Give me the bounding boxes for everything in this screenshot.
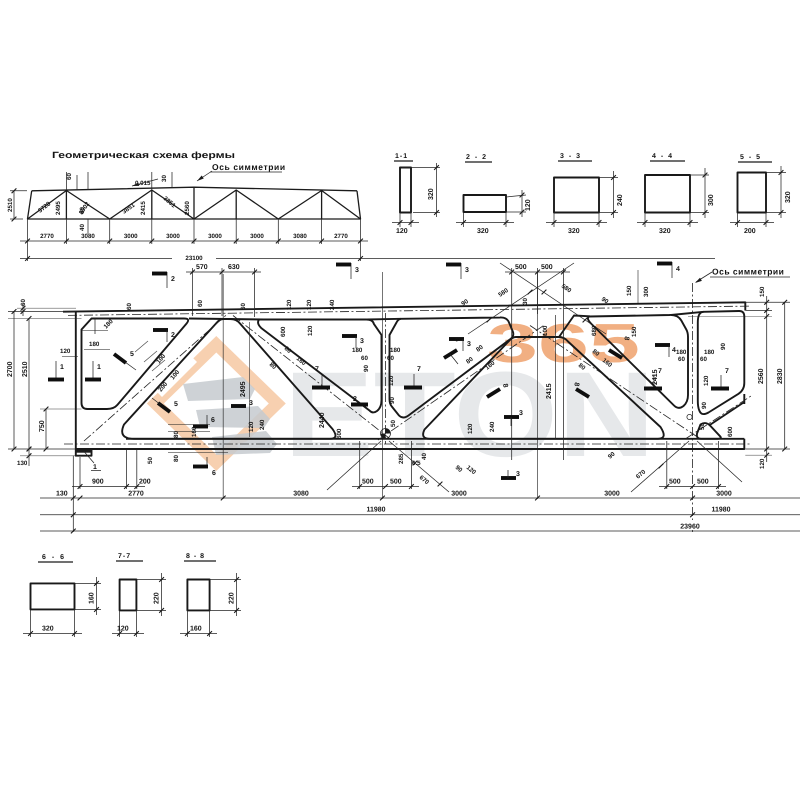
svg-text:90: 90 (720, 343, 727, 350)
svg-text:500: 500 (362, 479, 374, 486)
svg-text:600: 600 (727, 426, 734, 437)
svg-text:23100: 23100 (185, 255, 203, 262)
svg-text:60: 60 (387, 355, 394, 362)
svg-text:2: 2 (353, 396, 357, 403)
svg-text:6.5: 6.5 (412, 460, 421, 467)
svg-text:11980: 11980 (366, 507, 385, 514)
svg-text:180: 180 (390, 347, 401, 354)
svg-text:3080: 3080 (293, 233, 307, 240)
svg-text:500: 500 (541, 264, 553, 271)
svg-text:50: 50 (699, 423, 706, 430)
svg-text:220: 220 (229, 592, 236, 604)
svg-text:3: 3 (467, 341, 471, 348)
svg-text:7-7: 7-7 (118, 553, 131, 560)
svg-text:4: 4 (676, 266, 680, 273)
svg-text:6 - 6: 6 - 6 (42, 554, 66, 561)
svg-text:2: 2 (171, 332, 175, 339)
svg-text:3: 3 (355, 267, 359, 274)
svg-text:1: 1 (60, 364, 64, 371)
svg-text:150: 150 (626, 285, 633, 296)
svg-text:60: 60 (66, 173, 73, 180)
svg-text:3000: 3000 (716, 491, 732, 498)
svg-text:2510: 2510 (22, 361, 29, 377)
svg-text:680: 680 (591, 325, 598, 336)
svg-text:570: 570 (196, 264, 208, 271)
svg-text:30: 30 (522, 298, 529, 305)
svg-text:3080: 3080 (81, 233, 95, 240)
svg-text:2700: 2700 (7, 361, 14, 377)
svg-text:130: 130 (56, 491, 68, 498)
svg-text:2560: 2560 (184, 201, 191, 215)
svg-text:50: 50 (147, 457, 154, 464)
svg-text:6: 6 (211, 417, 215, 424)
svg-text:2495: 2495 (240, 381, 247, 397)
svg-text:7: 7 (725, 368, 729, 375)
svg-text:120: 120 (467, 423, 474, 434)
svg-text:2 - 2: 2 - 2 (466, 154, 488, 161)
svg-text:2770: 2770 (128, 491, 144, 498)
svg-text:60: 60 (197, 300, 204, 307)
svg-text:120: 120 (306, 299, 313, 310)
svg-text:11980: 11980 (711, 507, 730, 514)
svg-text:2510: 2510 (7, 198, 14, 212)
svg-text:240: 240 (617, 194, 624, 206)
svg-text:630: 630 (228, 264, 240, 271)
svg-text:500: 500 (697, 479, 709, 486)
svg-text:120: 120 (388, 375, 395, 386)
svg-text:5: 5 (174, 401, 178, 408)
svg-text:180: 180 (89, 341, 100, 348)
svg-text:900: 900 (92, 479, 104, 486)
svg-text:3000: 3000 (208, 233, 222, 240)
svg-text:3000: 3000 (451, 491, 467, 498)
svg-text:Ось симметрии: Ось симметрии (712, 267, 784, 277)
svg-text:80: 80 (173, 455, 180, 462)
svg-text:160: 160 (89, 592, 96, 604)
svg-text:120: 120 (525, 199, 532, 211)
svg-text:40: 40 (421, 453, 428, 460)
svg-text:600: 600 (336, 428, 343, 439)
svg-text:320: 320 (659, 228, 671, 235)
svg-text:180: 180 (704, 349, 715, 356)
svg-text:240: 240 (259, 419, 266, 430)
svg-text:60: 60 (79, 207, 86, 214)
svg-text:500: 500 (390, 479, 402, 486)
svg-text:50: 50 (390, 420, 397, 427)
svg-text:1: 1 (93, 464, 97, 471)
svg-text:5 - 5: 5 - 5 (740, 154, 762, 161)
svg-text:240: 240 (489, 421, 496, 432)
svg-text:7: 7 (315, 366, 319, 373)
svg-text:320: 320 (785, 191, 792, 203)
svg-text:30: 30 (161, 175, 168, 182)
svg-text:3: 3 (516, 471, 520, 478)
svg-text:4 - 4: 4 - 4 (652, 153, 674, 160)
svg-text:180: 180 (352, 347, 363, 354)
svg-text:3: 3 (360, 338, 364, 345)
svg-text:90: 90 (363, 365, 370, 372)
svg-text:320: 320 (42, 626, 54, 633)
svg-text:100: 100 (542, 325, 549, 336)
svg-text:120: 120 (307, 325, 314, 336)
svg-text:3000: 3000 (124, 233, 138, 240)
svg-text:120: 120 (248, 421, 255, 432)
svg-text:120: 120 (286, 299, 293, 310)
svg-text:5: 5 (130, 351, 134, 358)
svg-text:1: 1 (97, 364, 101, 371)
svg-text:Ось симметрии: Ось симметрии (212, 162, 286, 172)
svg-text:220: 220 (154, 592, 161, 604)
svg-text:60: 60 (678, 356, 685, 363)
svg-text:3000: 3000 (604, 491, 620, 498)
svg-text:300: 300 (643, 286, 650, 297)
svg-text:90: 90 (389, 397, 396, 404)
svg-text:600: 600 (280, 326, 287, 337)
svg-text:Геометрическая схема фермы: Геометрическая схема фермы (52, 150, 235, 160)
svg-text:90: 90 (701, 402, 708, 409)
svg-text:500: 500 (515, 264, 527, 271)
svg-text:23960: 23960 (680, 524, 700, 531)
svg-text:60: 60 (126, 303, 133, 310)
svg-text:3000: 3000 (250, 233, 264, 240)
svg-text:160: 160 (190, 626, 202, 633)
svg-text:500: 500 (669, 479, 681, 486)
svg-text:7: 7 (417, 366, 421, 373)
svg-text:60: 60 (700, 356, 707, 363)
svg-text:40: 40 (79, 224, 86, 231)
svg-text:2770: 2770 (40, 233, 54, 240)
svg-text:320: 320 (568, 228, 580, 235)
svg-text:300: 300 (708, 194, 715, 206)
svg-text:1-1: 1-1 (395, 153, 408, 160)
svg-text:120: 120 (117, 626, 129, 633)
svg-text:120: 120 (60, 348, 71, 355)
svg-text:3 - 3: 3 - 3 (560, 153, 582, 160)
svg-text:320: 320 (477, 228, 489, 235)
svg-text:2: 2 (171, 276, 175, 283)
svg-text:2560: 2560 (758, 368, 765, 384)
svg-text:120: 120 (396, 228, 408, 235)
svg-text:60: 60 (361, 355, 368, 362)
svg-text:150: 150 (631, 326, 638, 337)
svg-text:2440: 2440 (319, 412, 326, 428)
svg-text:3: 3 (465, 267, 469, 274)
svg-text:2415: 2415 (546, 383, 553, 399)
svg-text:200: 200 (139, 479, 151, 486)
svg-text:2415: 2415 (140, 201, 147, 215)
svg-text:2495: 2495 (55, 201, 62, 215)
svg-text:60: 60 (20, 299, 27, 306)
svg-text:180: 180 (676, 349, 687, 356)
svg-text:3000: 3000 (166, 233, 180, 240)
svg-text:2830: 2830 (777, 368, 784, 384)
svg-text:200: 200 (744, 228, 756, 235)
svg-text:130: 130 (17, 460, 28, 467)
svg-text:320: 320 (428, 188, 435, 200)
svg-text:60: 60 (240, 303, 247, 310)
svg-text:8 - 8: 8 - 8 (186, 553, 205, 560)
svg-text:120: 120 (703, 375, 710, 386)
svg-text:3080: 3080 (293, 491, 309, 498)
svg-text:120: 120 (759, 458, 766, 469)
svg-text:6: 6 (212, 470, 216, 477)
svg-text:285: 285 (398, 453, 405, 464)
svg-text:2415: 2415 (652, 369, 659, 385)
svg-text:750: 750 (39, 420, 46, 432)
svg-text:150: 150 (759, 286, 766, 297)
svg-text:240: 240 (329, 299, 336, 310)
svg-text:3: 3 (519, 410, 523, 417)
svg-text:2770: 2770 (334, 233, 348, 240)
